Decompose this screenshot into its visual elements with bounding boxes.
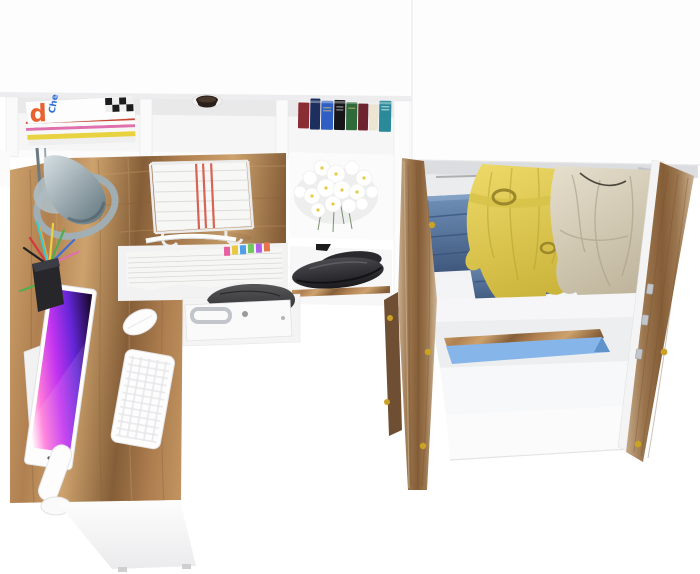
shelf-divider-mid1 [140, 99, 152, 158]
index-tab [264, 242, 270, 251]
magazine-checker-corner [105, 97, 133, 112]
cable-grommet [192, 95, 222, 108]
silver-hinge-icon [635, 349, 642, 360]
shoe-shelf [290, 244, 392, 306]
desk-top-panel [0, 0, 412, 96]
paper-tray [150, 160, 253, 246]
book-row [298, 98, 392, 132]
wardrobe-unit [384, 0, 700, 490]
drawer-knob [242, 311, 248, 317]
index-tab [232, 245, 238, 254]
index-tab [224, 247, 230, 256]
wardrobe-front-panel [414, 0, 700, 165]
book-spine [310, 98, 321, 129]
book-spine [379, 101, 392, 132]
flower-compartment [290, 152, 394, 240]
gold-hinge-icon [420, 443, 426, 449]
gold-hinge-icon [429, 222, 435, 228]
gold-handle-icon [661, 349, 668, 356]
scene-canvas: d Che [0, 0, 700, 574]
book-spine [334, 100, 346, 130]
drawer-hinge-dot [281, 316, 285, 320]
book-spine [358, 103, 368, 130]
magazine-spine-letter: d [29, 99, 47, 128]
hutch-shelf-row: d Che [6, 91, 406, 162]
index-tab [248, 244, 254, 253]
index-tab [256, 244, 262, 253]
desk-foot-right [182, 564, 191, 569]
book-spine [369, 105, 378, 131]
hutch-left-side-sliver [0, 150, 10, 188]
gold-handle-icon [635, 441, 642, 448]
shelf-divider-left [6, 97, 18, 157]
silver-hinge-icon [646, 284, 653, 295]
gold-handle-icon [425, 349, 431, 355]
desk-foot-left [118, 567, 127, 572]
book-spine [298, 102, 309, 128]
magazine-stack: d Che [25, 91, 137, 146]
desk-unit: d Che [0, 0, 412, 572]
book-spine [321, 101, 334, 130]
gold-hinge-icon [384, 399, 390, 405]
silver-hinge-icon [641, 315, 648, 326]
desk-front-panel [58, 500, 196, 569]
index-tab [240, 245, 246, 254]
book-spine [346, 102, 357, 130]
gold-hinge-icon [387, 315, 393, 321]
furniture-product-render: d Che [0, 0, 700, 574]
shelf-divider-mid2 [276, 100, 288, 159]
